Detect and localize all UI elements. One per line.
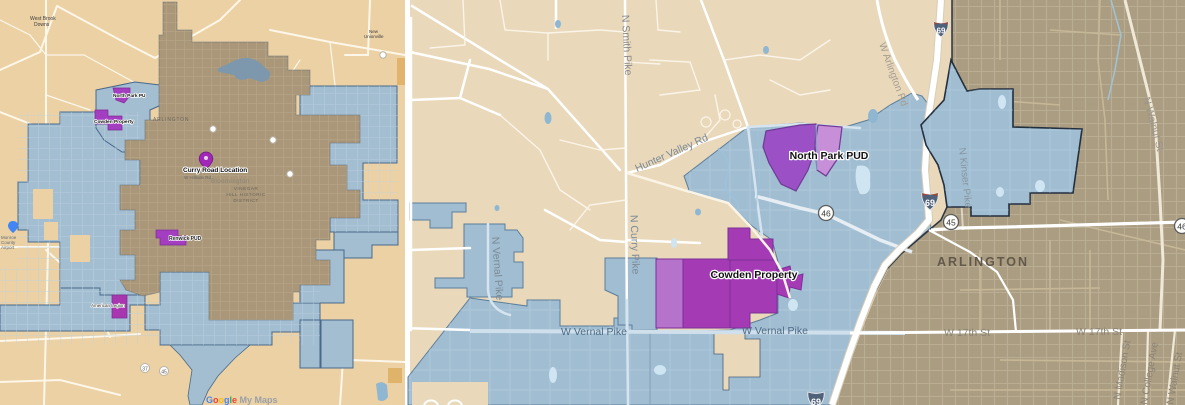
svg-text:W 17th St: W 17th St	[944, 327, 990, 339]
svg-text:ARLINGTON: ARLINGTON	[937, 255, 1029, 269]
svg-text:VINEGAR: VINEGAR	[234, 186, 259, 192]
svg-text:45: 45	[161, 370, 167, 376]
svg-text:HILL HISTORIC: HILL HISTORIC	[226, 192, 265, 198]
svg-text:Unionville: Unionville	[364, 34, 384, 39]
svg-text:69: 69	[937, 27, 946, 36]
svg-text:North Park PUD: North Park PUD	[790, 150, 869, 162]
svg-text:DISTRICT: DISTRICT	[233, 198, 258, 204]
svg-text:Downs: Downs	[34, 22, 50, 28]
svg-text:N Curry Pike: N Curry Pike	[628, 215, 642, 275]
svg-text:North Park PU: North Park PU	[113, 93, 146, 99]
svg-text:37: 37	[142, 367, 148, 373]
svg-text:Bloomington: Bloomington	[211, 179, 250, 185]
svg-text:69: 69	[811, 397, 821, 405]
svg-text:Cowden Property: Cowden Property	[94, 119, 134, 125]
svg-text:American Legion: American Legion	[91, 303, 125, 308]
svg-text:Google My Maps: Google My Maps	[206, 395, 278, 405]
svg-text:Curry Road Location: Curry Road Location	[183, 167, 247, 174]
svg-text:45: 45	[946, 218, 956, 228]
svg-text:69: 69	[925, 198, 935, 208]
svg-text:W Vernal Pike: W Vernal Pike	[561, 326, 627, 338]
svg-text:W Hillside Rd: W Hillside Rd	[184, 175, 212, 180]
svg-text:W 17th St: W 17th St	[1076, 326, 1122, 338]
svg-text:Renwick PUD: Renwick PUD	[169, 236, 202, 242]
svg-text:46: 46	[1177, 222, 1185, 232]
svg-text:Cowden Property: Cowden Property	[711, 269, 798, 281]
svg-text:46: 46	[821, 209, 831, 219]
svg-text:ARLINGTON: ARLINGTON	[153, 117, 189, 123]
svg-text:Airport: Airport	[1, 245, 15, 250]
svg-text:W Vernal Pike: W Vernal Pike	[742, 325, 808, 337]
